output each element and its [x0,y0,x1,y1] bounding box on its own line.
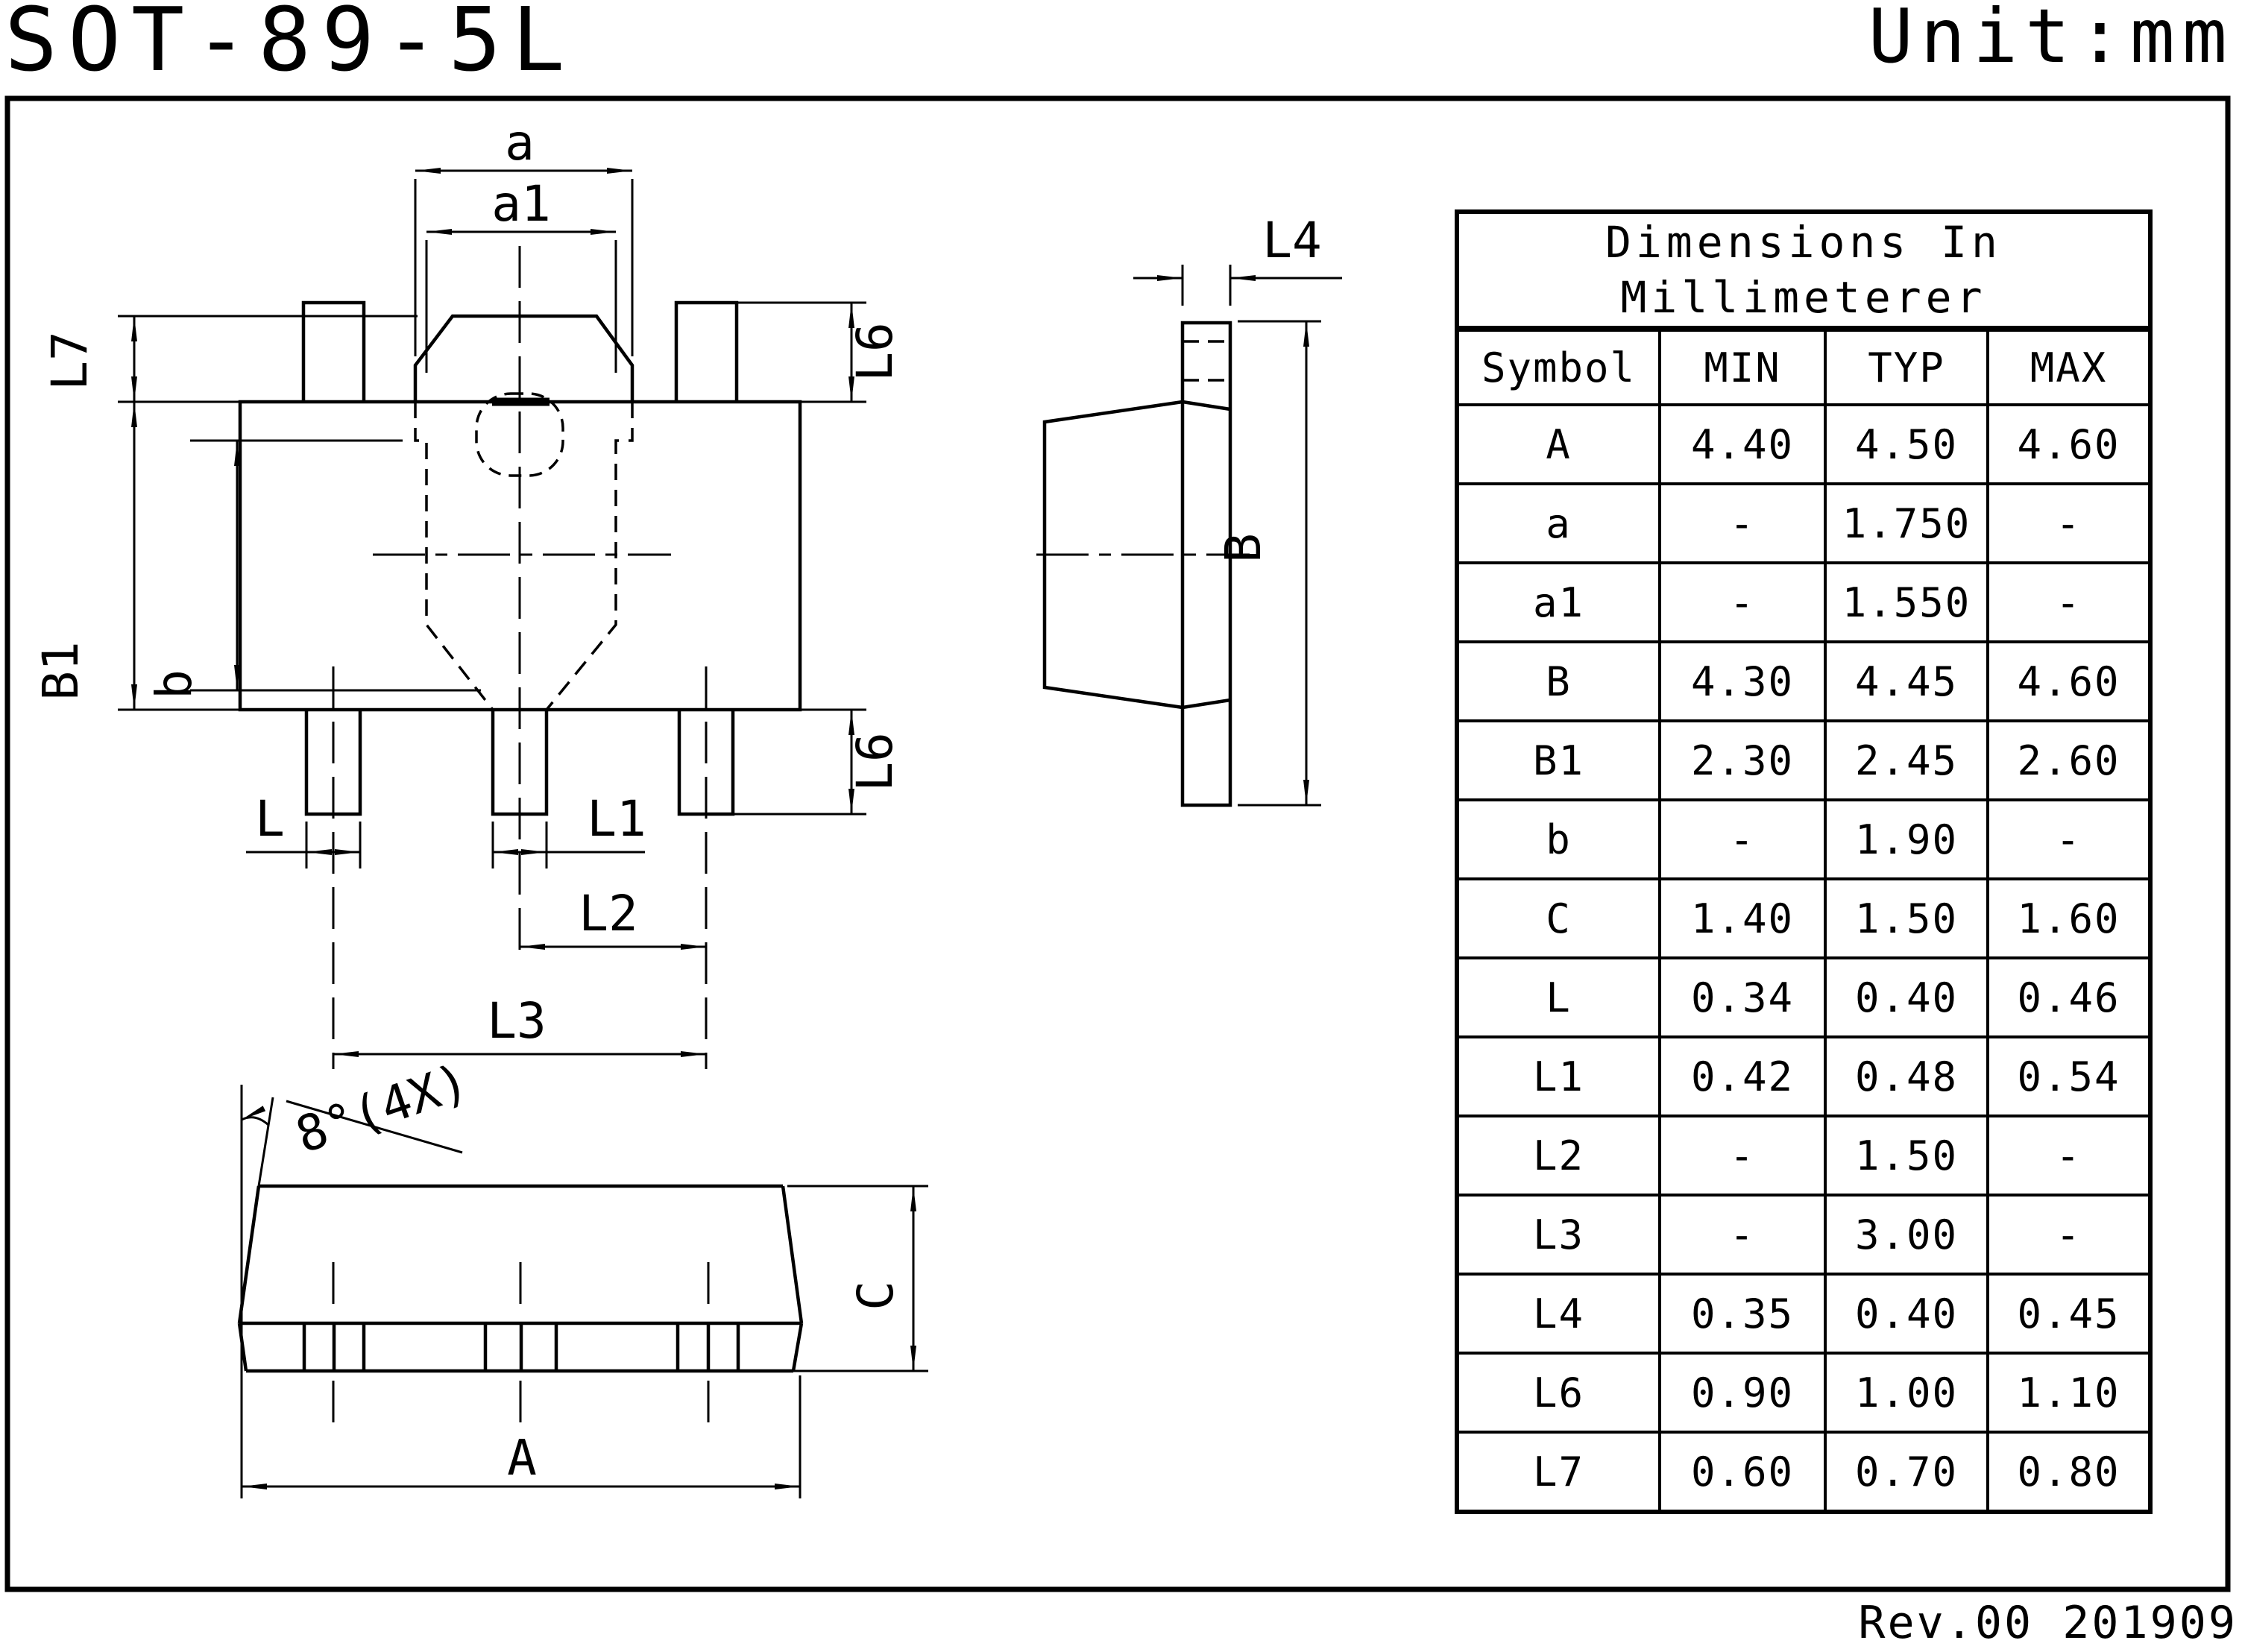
table-cell-min: - [1660,563,1825,642]
dim-label-a: a [505,114,535,171]
side-view: L4 B [1036,212,1342,805]
table-row: C1.401.501.60 [1457,879,2150,958]
dim-label-b: b [145,669,203,699]
table-cell-max: 0.80 [1988,1432,2150,1512]
table-row: a-1.750- [1457,484,2150,563]
table-row: L40.350.400.45 [1457,1274,2150,1353]
table-cell-typ: 1.00 [1825,1353,1988,1432]
table-cell-max: - [1988,563,2150,642]
dimensions-table: Dimensions In Millimeterer SymbolMINTYPM… [1455,209,2153,1514]
dim-label-l: L [255,790,285,848]
table-cell-min: 4.40 [1660,405,1825,484]
table-cell-min: 1.40 [1660,879,1825,958]
table-header-cell: Symbol [1457,329,1660,405]
table-title: Dimensions In Millimeterer [1457,212,2150,329]
leadframe-edge [1183,323,1230,805]
dim-label-l1: L1 [587,790,646,848]
table-row: B12.302.452.60 [1457,721,2150,800]
table-cell-typ: 3.00 [1825,1195,1988,1274]
table-row: A4.404.504.60 [1457,405,2150,484]
table-row: a1-1.550- [1457,563,2150,642]
table-cell-max: - [1988,1195,2150,1274]
table-cell-typ: 1.90 [1825,800,1988,879]
table-cell-symbol: A [1457,405,1660,484]
dim-label-b1: B1 [32,641,89,700]
dim-label-B: B [1215,533,1272,563]
table-cell-symbol: L3 [1457,1195,1660,1274]
table-cell-symbol: B [1457,642,1660,721]
table-cell-typ: 0.48 [1825,1037,1988,1116]
top-left-lead [303,303,364,402]
table-cell-typ: 2.45 [1825,721,1988,800]
table-header-cell: MAX [1988,329,2150,405]
table-cell-symbol: L6 [1457,1353,1660,1432]
dim-label-C: C [847,1281,904,1311]
table-cell-symbol: L2 [1457,1116,1660,1195]
dim-label-l2: L2 [579,885,637,942]
table-row: L3-3.00- [1457,1195,2150,1274]
table-cell-min: - [1660,800,1825,879]
table-title-row: Dimensions In Millimeterer [1457,212,2150,329]
table-cell-symbol: a1 [1457,563,1660,642]
table-cell-min: 0.90 [1660,1353,1825,1432]
dim-label-l6-bottom: L6 [846,732,904,791]
table-cell-max: - [1988,484,2150,563]
table-cell-typ: 0.40 [1825,958,1988,1037]
table-cell-typ: 1.550 [1825,563,1988,642]
table-header-row: SymbolMINTYPMAX [1457,329,2150,405]
table-cell-symbol: L [1457,958,1660,1037]
table-cell-min: - [1660,484,1825,563]
dim-label-l7: L7 [41,331,98,390]
table-cell-symbol: L1 [1457,1037,1660,1116]
table-cell-symbol: L7 [1457,1432,1660,1512]
table-cell-typ: 4.45 [1825,642,1988,721]
top-right-lead [676,303,737,402]
table-cell-symbol: L4 [1457,1274,1660,1353]
table-cell-symbol: C [1457,879,1660,958]
table-cell-typ: 1.50 [1825,1116,1988,1195]
table-cell-max: - [1988,800,2150,879]
table-cell-min: 0.35 [1660,1274,1825,1353]
table-cell-symbol: a [1457,484,1660,563]
table-cell-max: 0.45 [1988,1274,2150,1353]
table-cell-max: 0.46 [1988,958,2150,1037]
dim-label-l3: L3 [487,992,546,1050]
table-cell-max: 1.10 [1988,1353,2150,1432]
dim-label-A: A [507,1429,537,1487]
front-view: 8°(4X) A C [239,1053,928,1498]
angle-arc [242,1117,268,1125]
table-row: L60.901.001.10 [1457,1353,2150,1432]
table-cell-max: 0.54 [1988,1037,2150,1116]
table-cell-min: 0.60 [1660,1432,1825,1512]
center-tab [415,316,632,402]
table-cell-typ: 4.50 [1825,405,1988,484]
table-cell-max: - [1988,1116,2150,1195]
table-row: L10.420.480.54 [1457,1037,2150,1116]
table-cell-typ: 1.750 [1825,484,1988,563]
front-lead-divisions [304,1323,738,1371]
table-row: L0.340.400.46 [1457,958,2150,1037]
table-cell-symbol: b [1457,800,1660,879]
table-cell-max: 4.60 [1988,405,2150,484]
table-cell-min: - [1660,1195,1825,1274]
dim-label-l4: L4 [1262,212,1321,269]
table-cell-min: 0.42 [1660,1037,1825,1116]
table-cell-min: 4.30 [1660,642,1825,721]
top-view: a a1 L7 B1 b L6 L6 L L1 L2 L3 [32,114,904,1069]
table-cell-max: 4.60 [1988,642,2150,721]
table-cell-min: - [1660,1116,1825,1195]
table-cell-max: 2.60 [1988,721,2150,800]
lead-centerlines [333,246,706,1069]
table-row: b-1.90- [1457,800,2150,879]
table-cell-typ: 1.50 [1825,879,1988,958]
table-cell-typ: 0.40 [1825,1274,1988,1353]
table-header-cell: MIN [1660,329,1825,405]
table-cell-min: 2.30 [1660,721,1825,800]
dimensions-table-wrap: Dimensions In Millimeterer SymbolMINTYPM… [1455,209,2153,1514]
table-row: L2-1.50- [1457,1116,2150,1195]
table-row: L70.600.700.80 [1457,1432,2150,1512]
dim-label-a1: a1 [491,175,550,233]
page: SOT-89-5L Unit:mm Rev.00 201909 [0,0,2242,1652]
table-row: B4.304.454.60 [1457,642,2150,721]
table-cell-typ: 0.70 [1825,1432,1988,1512]
hidden-lead-lines [1183,341,1230,380]
table-cell-max: 1.60 [1988,879,2150,958]
table-cell-min: 0.34 [1660,958,1825,1037]
table-cell-symbol: B1 [1457,721,1660,800]
dim-label-l6-top: L6 [846,322,904,381]
table-header-cell: TYP [1825,329,1988,405]
